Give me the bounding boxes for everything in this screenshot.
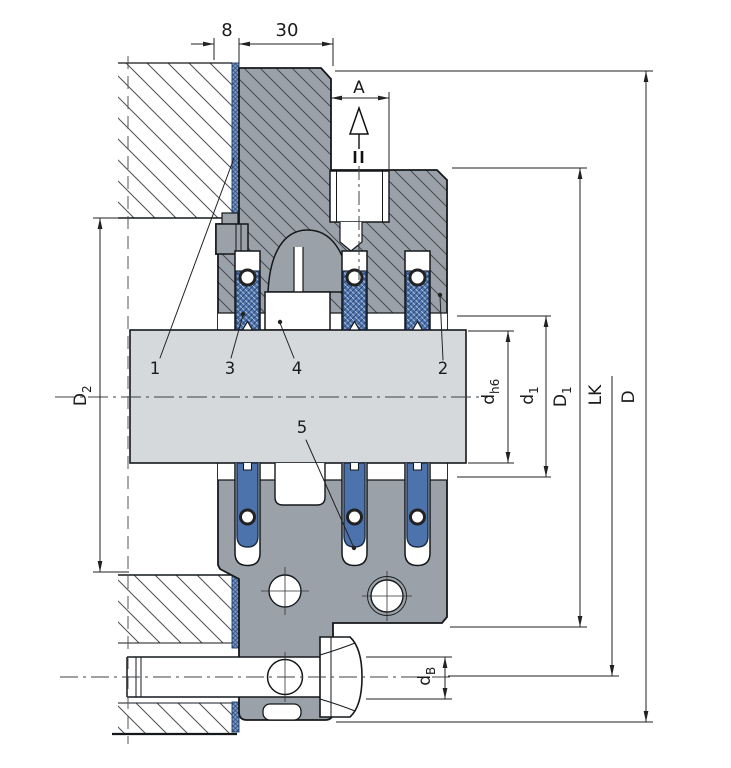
machine-wall-bottom bbox=[112, 575, 237, 734]
section-label: A bbox=[353, 78, 365, 98]
spring-ring-icon bbox=[348, 510, 362, 524]
machine-wall-top bbox=[118, 63, 232, 218]
spring-ring-icon bbox=[347, 270, 362, 285]
packing-seal-lower-1 bbox=[235, 463, 260, 566]
spring-ring-icon bbox=[410, 270, 425, 285]
dimension-dB: d B bbox=[366, 657, 452, 699]
callout-4: 4 bbox=[292, 359, 303, 378]
dimension-d2: D 2 bbox=[71, 218, 129, 572]
dim-label-8: 8 bbox=[221, 20, 232, 41]
dim-label-d2-main: D bbox=[71, 393, 91, 406]
packing-seal-upper-1 bbox=[235, 251, 260, 330]
dim-label-dB-main: d bbox=[415, 675, 435, 686]
gasket-bottom-lower bbox=[232, 702, 239, 732]
dim-label-30: 30 bbox=[276, 20, 299, 41]
dim-label-D1-sub: 1 bbox=[560, 386, 574, 394]
flow-arrow-icon bbox=[350, 108, 368, 134]
spring-ring-icon bbox=[241, 510, 255, 524]
packing-seal-upper-3 bbox=[405, 251, 430, 330]
packing-seal-lower-3 bbox=[405, 463, 430, 566]
technical-drawing-page: A 8 30 D 2 d h6 bbox=[0, 0, 731, 768]
gasket-top bbox=[232, 63, 239, 213]
callout-3: 3 bbox=[225, 359, 236, 378]
dim-label-dh6-main: d bbox=[479, 394, 499, 405]
dim-label-d1-sub: 1 bbox=[527, 386, 541, 394]
spring-ring-icon bbox=[411, 510, 425, 524]
dim-label-D: D bbox=[619, 390, 639, 403]
spring-ring-icon bbox=[240, 270, 255, 285]
dimension-d1: d 1 bbox=[457, 316, 551, 477]
callout-5: 5 bbox=[297, 418, 308, 437]
dimension-dh6: d h6 bbox=[468, 331, 514, 463]
packing-seal-upper-2 bbox=[342, 251, 367, 330]
dim-label-D1-main: D bbox=[551, 394, 571, 407]
gasket-bottom-upper bbox=[232, 575, 239, 648]
lantern-ring-spacer bbox=[265, 292, 330, 330]
boss-relief-pocket bbox=[263, 704, 301, 720]
lower-spacer-pocket bbox=[275, 463, 325, 505]
callout-2: 2 bbox=[438, 359, 449, 378]
dimension-LK: LK bbox=[448, 376, 619, 676]
dimension-top-widths: 8 30 bbox=[191, 20, 333, 66]
callout-1: 1 bbox=[150, 359, 161, 378]
gland-section-drawing: A 8 30 D 2 d h6 bbox=[0, 0, 731, 768]
dim-label-dh6-sub: h6 bbox=[488, 379, 502, 394]
dim-label-d1-main: d bbox=[518, 394, 538, 405]
dim-label-d2-sub: 2 bbox=[80, 385, 94, 393]
dim-label-dB-sub: B bbox=[424, 667, 438, 675]
dim-label-LK: LK bbox=[586, 384, 606, 405]
